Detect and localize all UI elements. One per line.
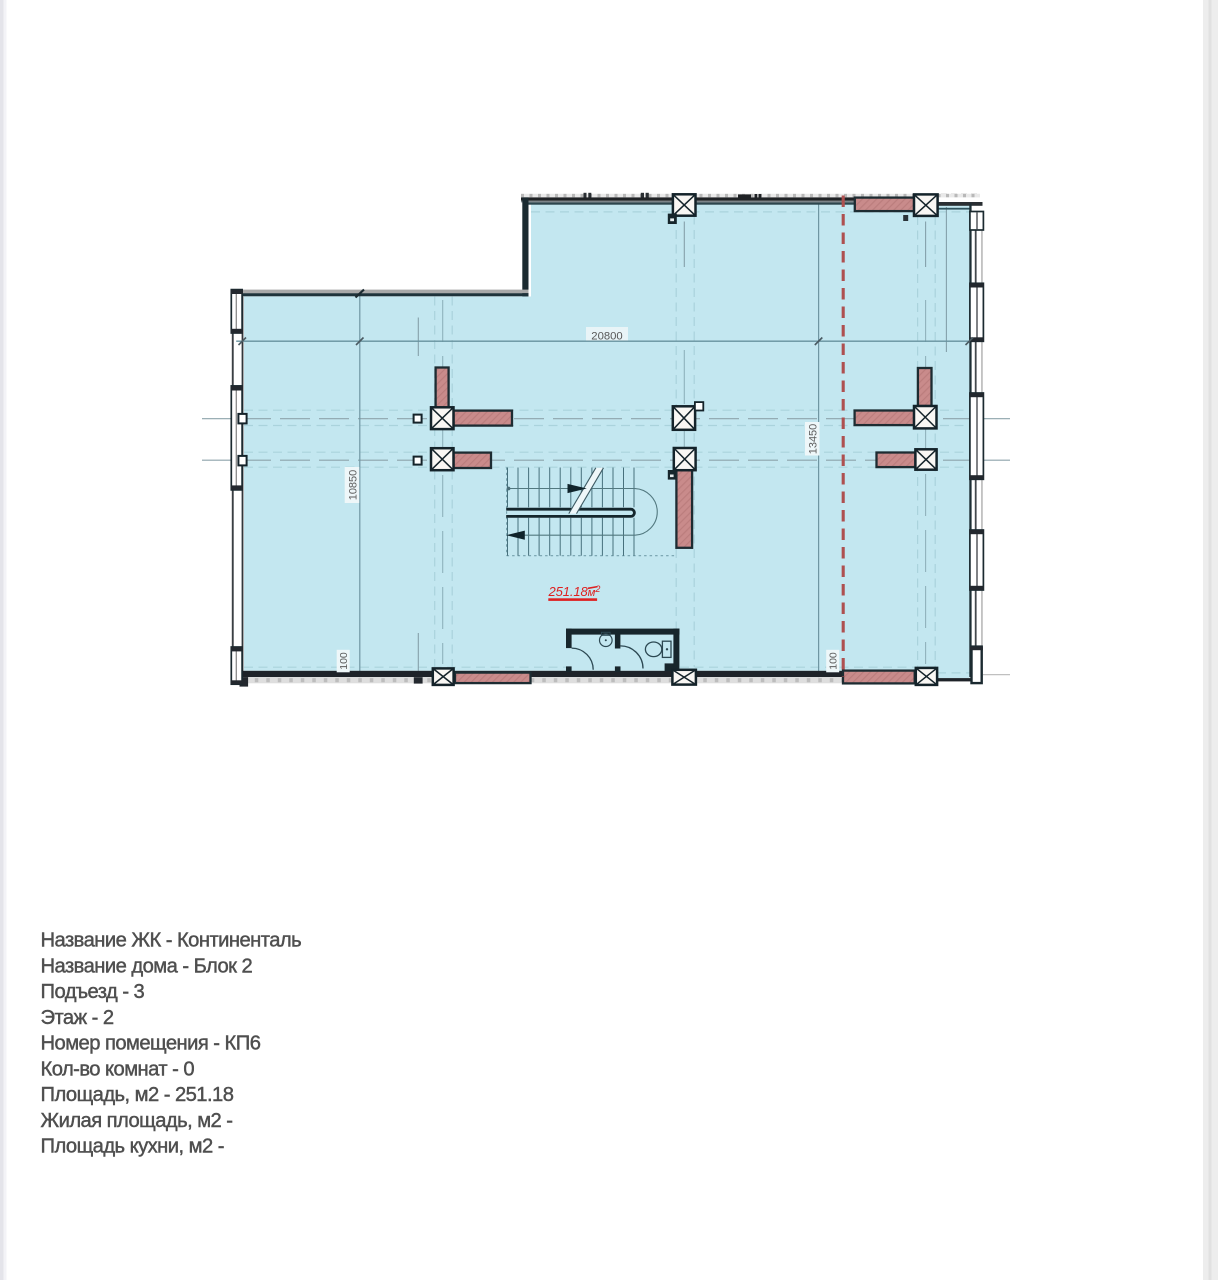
- svg-text:13450: 13450: [808, 424, 820, 455]
- svg-text:Кол-во комнат - 0: Кол-во комнат - 0: [41, 1058, 195, 1080]
- svg-text:Название ЖК - Континенталь: Название ЖК - Континенталь: [41, 930, 302, 952]
- svg-text:100: 100: [828, 652, 840, 670]
- svg-text:100: 100: [338, 652, 350, 670]
- svg-text:10850: 10850: [347, 470, 359, 501]
- svg-text:Название дома - Блок 2: Название дома - Блок 2: [41, 955, 253, 977]
- svg-text:Жилая площадь, м2 -: Жилая площадь, м2 -: [41, 1110, 233, 1132]
- svg-text:Площадь кухни, м2 -: Площадь кухни, м2 -: [41, 1136, 224, 1158]
- svg-text:Номер помещения - КП6: Номер помещения - КП6: [41, 1033, 261, 1055]
- svg-text:20800: 20800: [591, 330, 622, 342]
- svg-text:Подъезд - 3: Подъезд - 3: [41, 981, 145, 1003]
- svg-text:Этаж - 2: Этаж - 2: [41, 1007, 114, 1029]
- svg-text:Площадь, м2 - 251.18: Площадь, м2 - 251.18: [41, 1084, 234, 1106]
